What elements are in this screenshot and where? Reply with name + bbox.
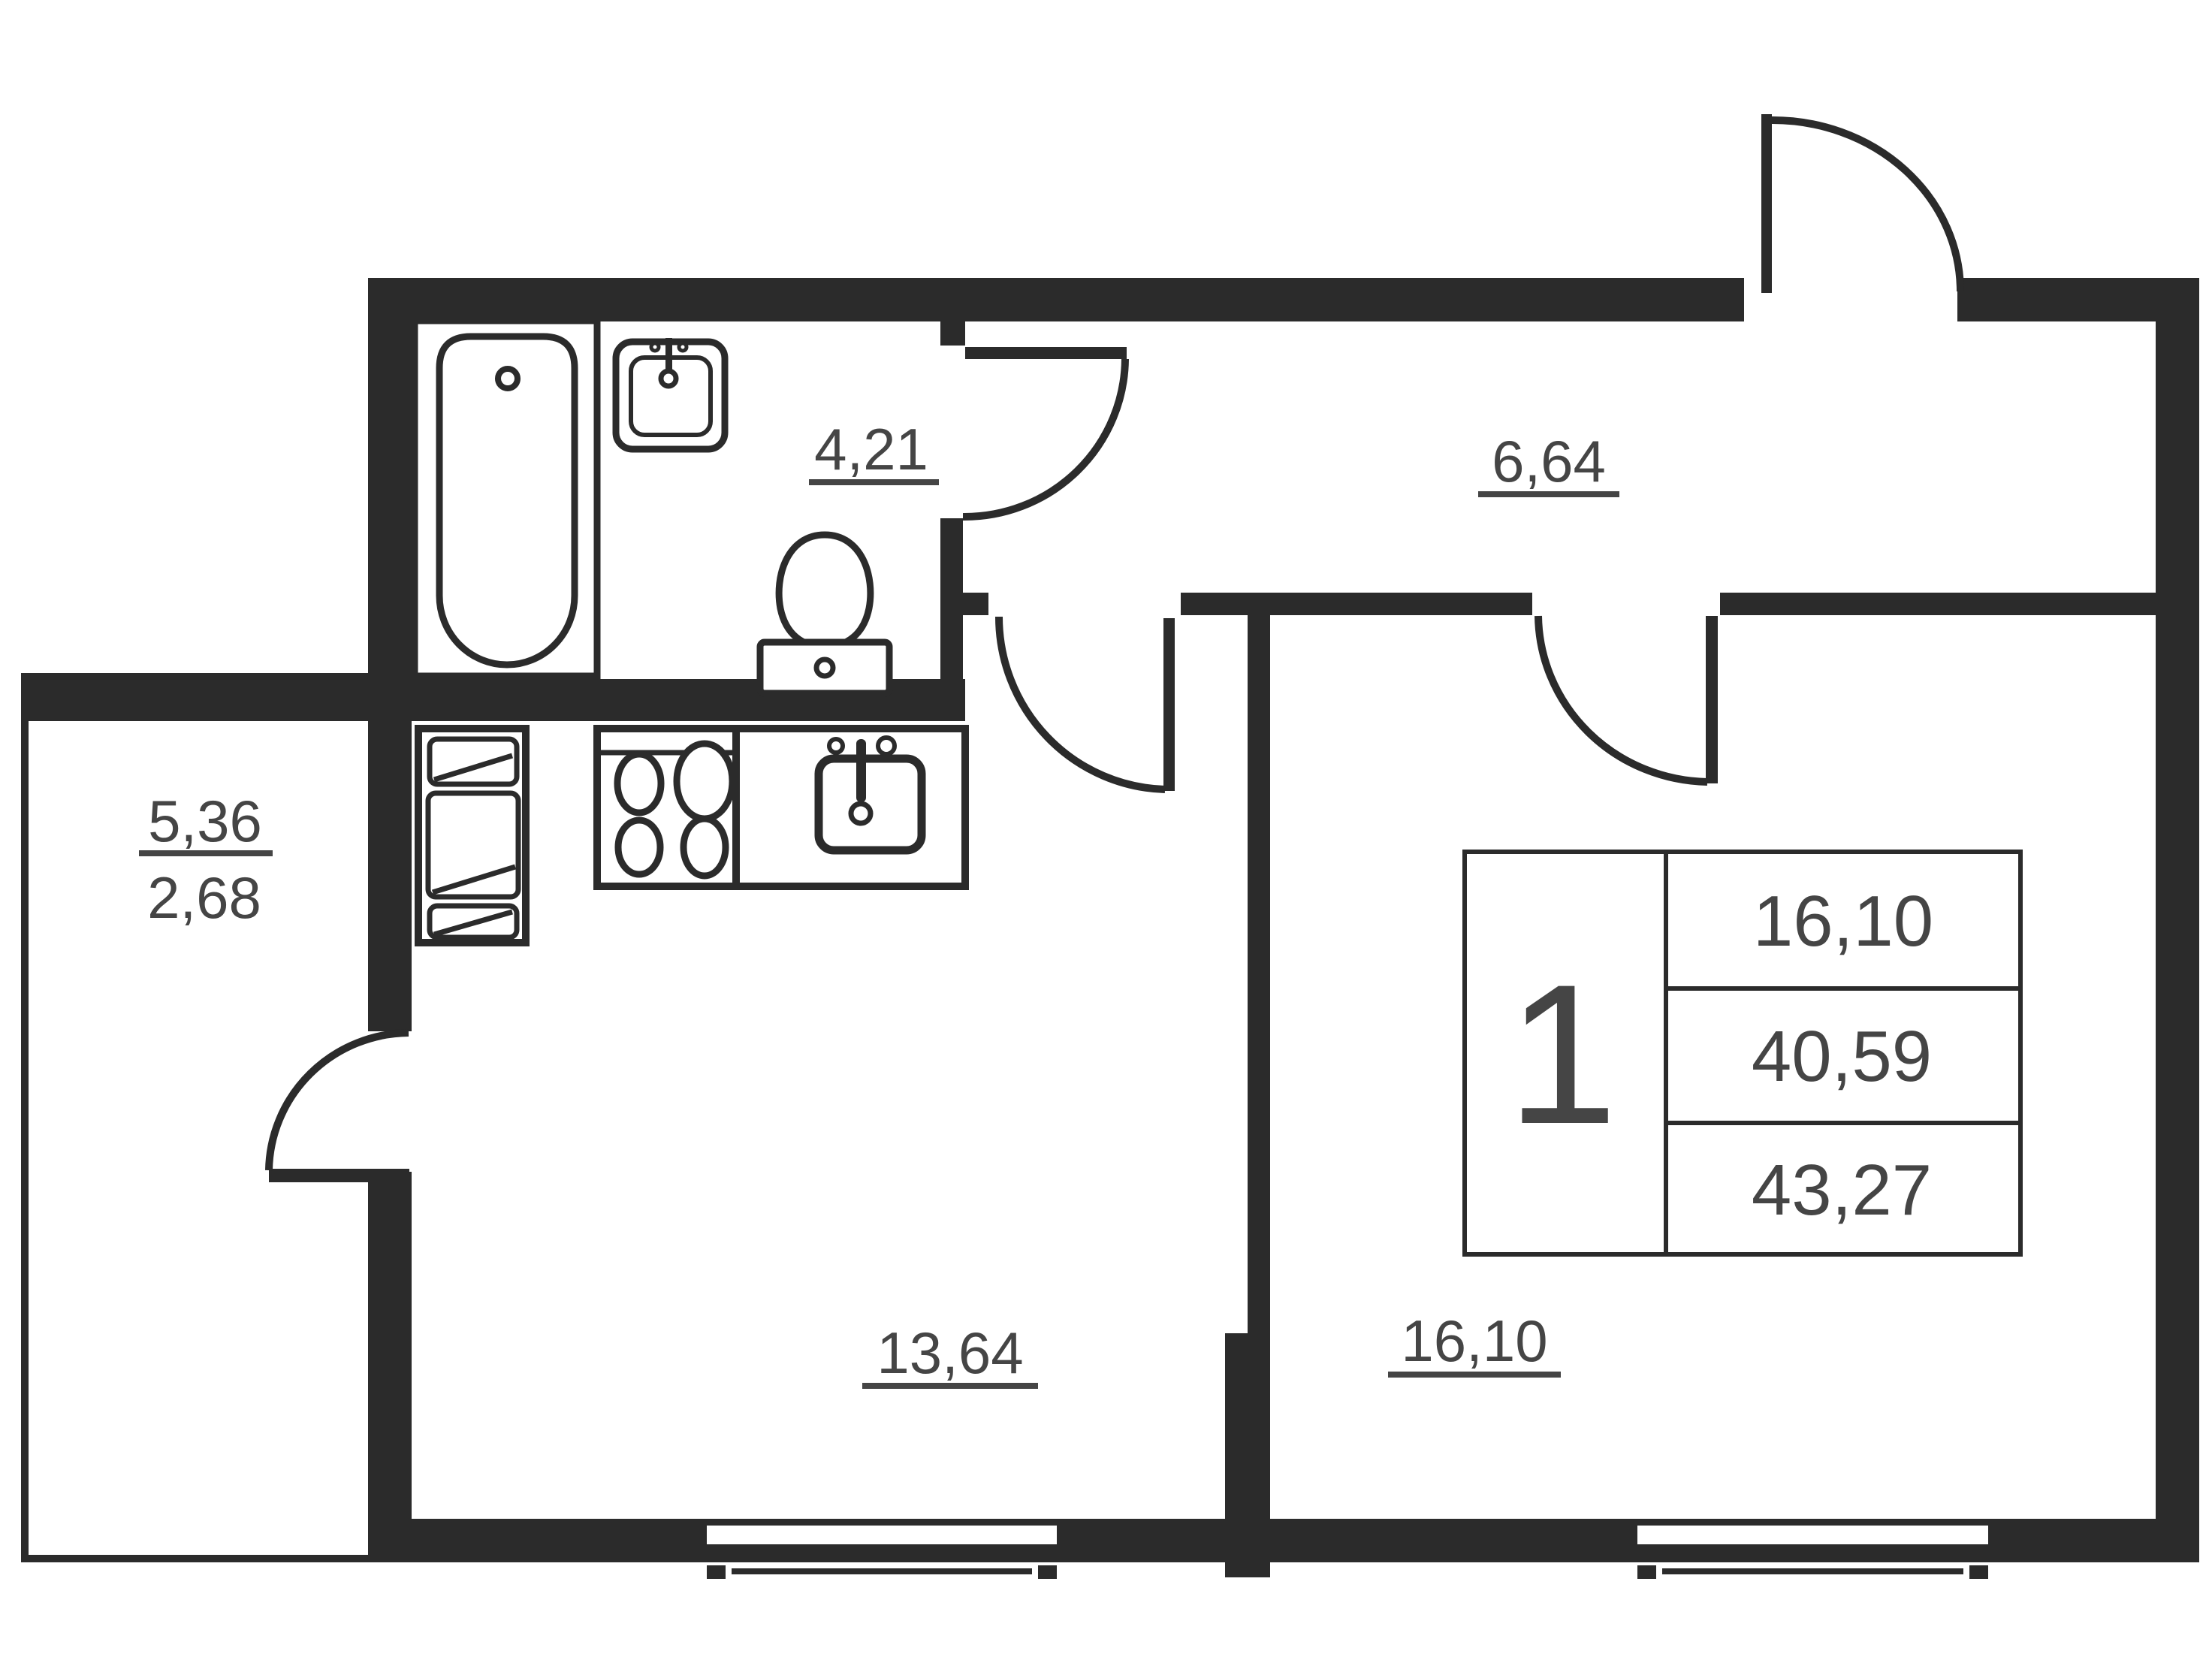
balcony-edge-bottom xyxy=(21,1555,368,1562)
wall-hall-stub xyxy=(940,593,988,615)
stove xyxy=(597,729,736,886)
entrance-door-leaf xyxy=(1761,114,1772,293)
bathroom-door-arc xyxy=(963,359,1125,517)
info-table-rooms-count: 1 xyxy=(1507,943,1617,1166)
info-table: 1 16,10 40,59 43,27 xyxy=(1465,852,2020,1254)
hallway-area-underline xyxy=(1478,491,1619,497)
balcony-edge-top xyxy=(21,673,368,679)
wall-bathroom-east xyxy=(940,518,963,721)
kitchen-sink xyxy=(736,729,965,886)
stove-burner-tr xyxy=(677,744,732,819)
toilet xyxy=(760,535,889,693)
bedroom-area-label: 16,10 xyxy=(1401,1308,1547,1374)
kitchen-door-arc xyxy=(999,617,1165,789)
bathroom-sink-handle-left xyxy=(651,343,659,351)
wall-left-lower xyxy=(368,1172,412,1562)
balcony-door xyxy=(269,1033,409,1182)
kitchen-faucet-handle-left xyxy=(829,739,843,753)
wall-bottom-middle xyxy=(1057,1519,1637,1562)
window-sill-stub-right xyxy=(1969,1565,1988,1579)
bedroom-door-arc xyxy=(1538,616,1707,782)
bathroom-area-label: 4,21 xyxy=(814,416,928,482)
kitchen-sink-basin xyxy=(819,759,922,850)
bathroom-sink-faucet-stem xyxy=(665,338,672,370)
bathroom-door-leaf xyxy=(965,347,1127,359)
kitchen-door xyxy=(999,617,1175,791)
room-labels: 4,21 6,64 5,36 2,68 13,64 16,10 xyxy=(139,416,1619,1389)
wall-top-left xyxy=(368,278,1744,321)
kitchen-faucet-head xyxy=(851,804,871,823)
balcony-edge-left xyxy=(21,673,29,1562)
wall-bathroom-east-stub xyxy=(940,321,965,346)
wall-left-upper xyxy=(368,278,412,1031)
floor-plan-svg: 4,21 6,64 5,36 2,68 13,64 16,10 1 16,10 … xyxy=(0,0,2212,1666)
wall-divider-pier xyxy=(1225,1333,1270,1577)
bedroom-area-underline xyxy=(1388,1372,1561,1378)
bathroom-area-underline xyxy=(809,479,939,485)
window-bedroom xyxy=(1637,1519,1988,1579)
info-table-living-area: 16,10 xyxy=(1753,881,1933,961)
balcony-area-full-label: 5,36 xyxy=(148,788,262,854)
wall-room-divider xyxy=(1248,614,1270,1333)
stove-burner-bl xyxy=(618,820,660,874)
kitchen-living-area-underline xyxy=(862,1383,1038,1389)
window-frame-band xyxy=(707,1544,1057,1562)
bathroom-sink xyxy=(616,338,725,449)
window-wall-line xyxy=(1637,1519,1988,1526)
balcony-area-counted-label: 2,68 xyxy=(147,865,261,931)
kitchen-living-area-label: 13,64 xyxy=(877,1320,1023,1386)
window-sill-stub-left xyxy=(707,1565,726,1579)
bathroom-sink-faucet-head xyxy=(661,371,676,386)
wall-bottom-left xyxy=(368,1519,707,1562)
hallway-area-label: 6,64 xyxy=(1492,428,1606,494)
stove-burner-br xyxy=(684,819,726,876)
bathroom-door xyxy=(963,347,1127,517)
window-sill-line xyxy=(732,1568,1032,1574)
wall-bottom-right xyxy=(1988,1519,2199,1562)
wall-hall-south-mid xyxy=(1181,593,1532,615)
wall-hall-south-right xyxy=(1720,593,2156,615)
stove-burner-tl xyxy=(617,754,661,813)
window-wall-line xyxy=(707,1519,1057,1526)
wall-right xyxy=(2156,278,2199,1562)
window-living xyxy=(707,1519,1057,1579)
entrance-door-arc xyxy=(1772,120,1960,291)
toilet-button xyxy=(816,659,833,676)
info-table-total-area: 43,27 xyxy=(1752,1150,1932,1230)
info-table-area-without-balcony: 40,59 xyxy=(1752,1016,1932,1097)
bathtub-drain xyxy=(498,369,518,388)
kitchen-cabinet xyxy=(418,729,526,943)
bedroom-door xyxy=(1538,616,1718,783)
entrance-door xyxy=(1761,114,1960,293)
toilet-bowl xyxy=(779,535,871,647)
bathtub xyxy=(415,321,597,676)
kitchen-faucet-stem xyxy=(856,739,866,802)
balcony-door-arc xyxy=(269,1033,409,1170)
window-sill-stub-right xyxy=(1038,1565,1057,1579)
kitchen-door-leaf xyxy=(1163,618,1175,791)
balcony-area-underline xyxy=(139,850,273,856)
floor-plan: 4,21 6,64 5,36 2,68 13,64 16,10 1 16,10 … xyxy=(0,0,2212,1666)
bedroom-door-leaf xyxy=(1706,616,1718,783)
bathroom-sink-handle-right xyxy=(679,343,687,351)
window-sill-stub-left xyxy=(1637,1565,1656,1579)
window-frame-band xyxy=(1637,1544,1988,1562)
window-sill-line xyxy=(1662,1568,1963,1574)
kitchen-faucet-handle-right xyxy=(878,738,895,754)
balcony-door-leaf xyxy=(269,1169,409,1182)
